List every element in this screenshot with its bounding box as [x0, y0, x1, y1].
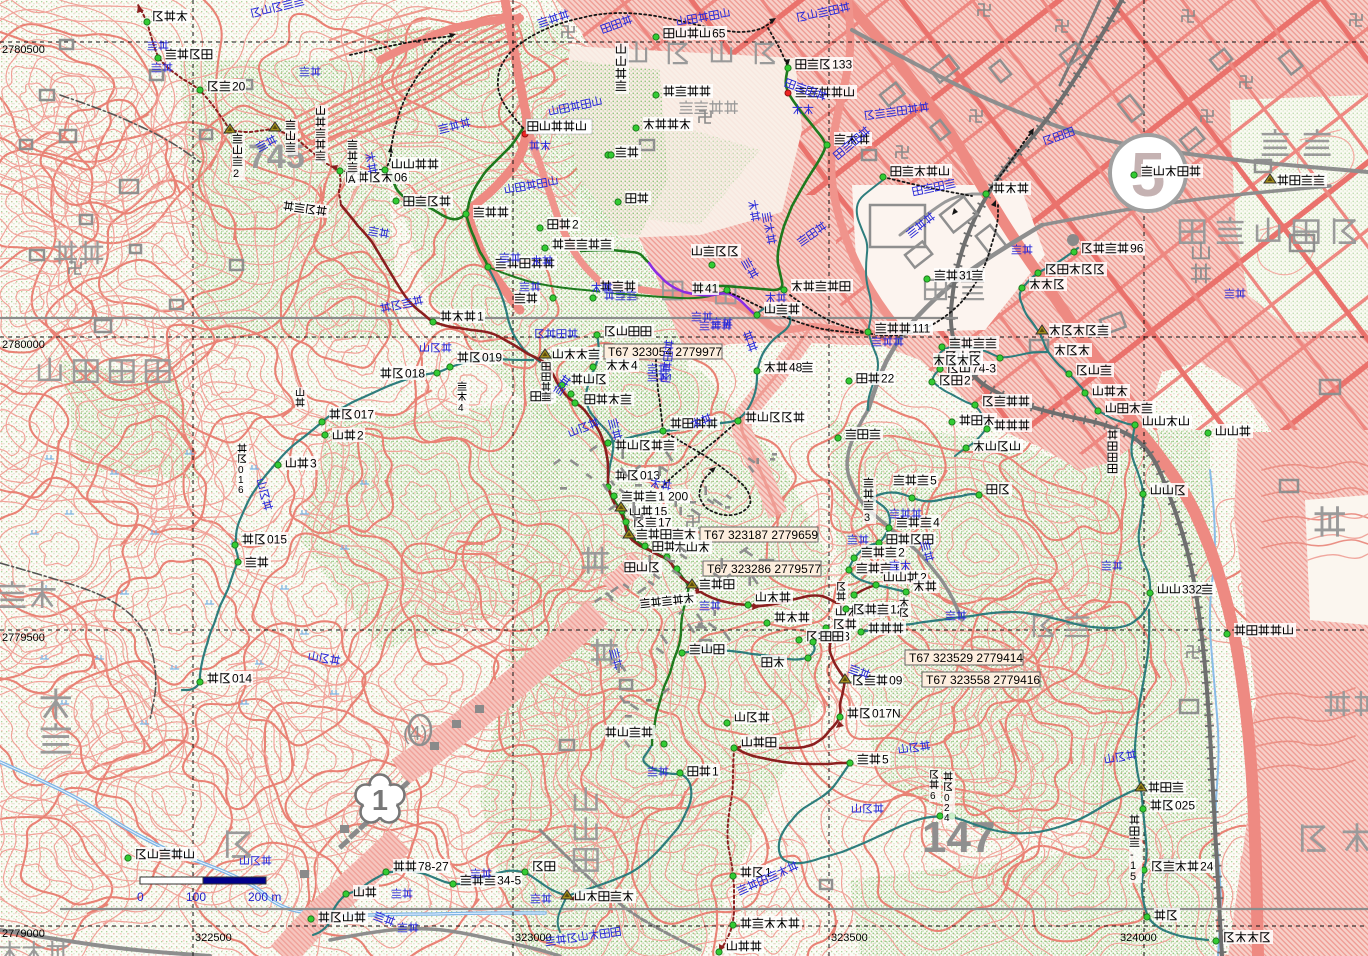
svg-text:2779000: 2779000: [2, 928, 45, 940]
svg-text:96: 96: [1130, 241, 1144, 255]
svg-text:3: 3: [864, 512, 870, 524]
svg-text:200 m: 200 m: [248, 890, 281, 904]
svg-text:09: 09: [889, 673, 903, 687]
svg-text:4: 4: [631, 358, 638, 372]
svg-text:018: 018: [405, 366, 425, 380]
svg-text:2780000: 2780000: [2, 339, 45, 351]
svg-text:20: 20: [232, 79, 246, 93]
svg-text:111: 111: [912, 321, 931, 335]
svg-text:22: 22: [881, 371, 895, 385]
svg-text:019: 019: [482, 350, 502, 364]
svg-text:31: 31: [959, 268, 973, 282]
svg-text:2: 2: [233, 168, 239, 180]
svg-text:1: 1: [372, 785, 388, 817]
svg-text:322500: 322500: [195, 932, 232, 944]
svg-text:2779500: 2779500: [2, 632, 45, 644]
svg-text:2: 2: [357, 428, 364, 442]
svg-text:100: 100: [186, 890, 206, 904]
svg-text:2: 2: [898, 545, 905, 559]
svg-text:48: 48: [789, 360, 803, 374]
svg-text:4: 4: [458, 403, 464, 414]
svg-text:147: 147: [922, 813, 995, 862]
svg-text:015: 015: [267, 532, 287, 546]
svg-text:T67 323529 2779414: T67 323529 2779414: [909, 651, 1023, 665]
svg-text:014: 014: [232, 671, 252, 685]
svg-text:013: 013: [640, 468, 660, 482]
svg-text:06: 06: [394, 170, 408, 184]
svg-text:5: 5: [1130, 871, 1136, 883]
svg-text:0: 0: [137, 890, 144, 904]
svg-text:78-27: 78-27: [418, 859, 449, 873]
svg-text:6: 6: [238, 485, 244, 496]
svg-text:323500: 323500: [831, 932, 868, 944]
svg-text:41: 41: [705, 281, 719, 295]
svg-text:017N: 017N: [872, 706, 901, 720]
svg-text:2: 2: [572, 217, 579, 231]
svg-text:4: 4: [944, 813, 950, 824]
svg-text:1 200: 1 200: [658, 489, 688, 503]
svg-text:1: 1: [477, 309, 484, 323]
svg-text:4: 4: [933, 515, 940, 529]
svg-text:2: 2: [964, 373, 971, 387]
svg-text:3: 3: [310, 456, 317, 470]
svg-text:017: 017: [354, 407, 374, 421]
svg-text:T67 323558 2779416: T67 323558 2779416: [926, 673, 1040, 687]
svg-text:1: 1: [712, 764, 719, 778]
svg-text:34-5: 34-5: [497, 873, 521, 887]
svg-text:A: A: [348, 174, 356, 186]
svg-text:T67 323187 2779659: T67 323187 2779659: [704, 528, 818, 542]
svg-text:65: 65: [712, 26, 726, 40]
svg-text:24: 24: [1200, 859, 1214, 873]
svg-text:5: 5: [882, 752, 889, 766]
svg-text:2780500: 2780500: [2, 44, 45, 56]
svg-text:324000: 324000: [1120, 932, 1157, 944]
svg-text:5: 5: [930, 473, 937, 487]
svg-text:(4): (4): [403, 723, 427, 745]
svg-text:133: 133: [832, 57, 852, 71]
svg-text:025: 025: [1175, 798, 1195, 812]
svg-text:6: 6: [930, 791, 936, 802]
svg-text:T67 323286 2779577: T67 323286 2779577: [707, 562, 821, 576]
svg-text:332: 332: [1182, 582, 1202, 596]
